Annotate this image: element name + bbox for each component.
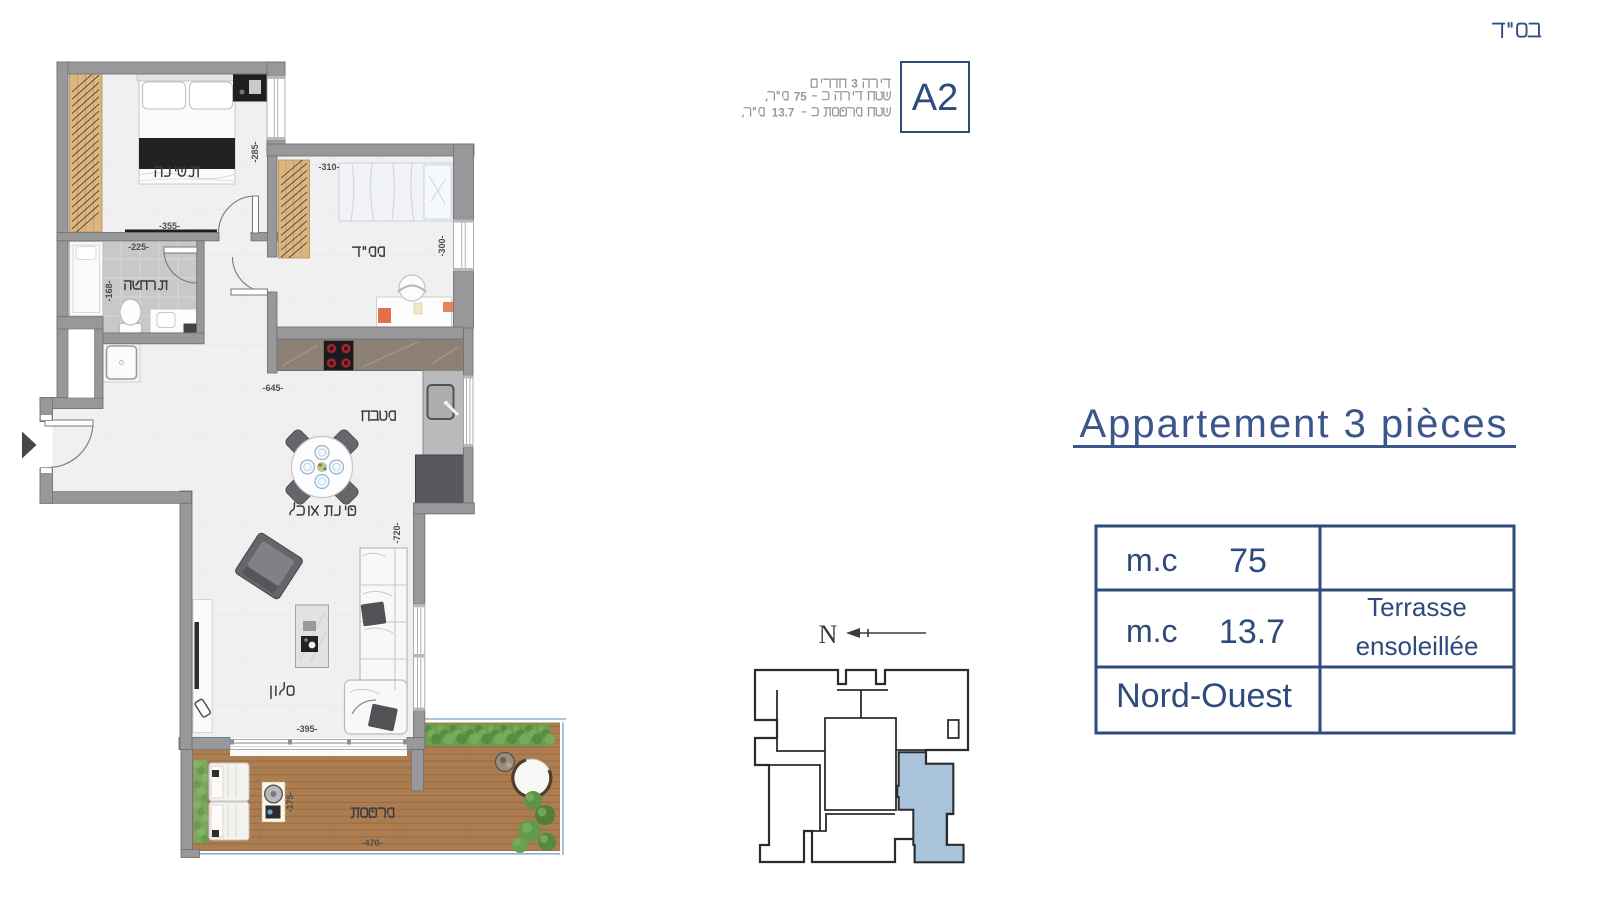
svg-text:3: 3 <box>851 78 858 91</box>
svg-text:A2: A2 <box>912 77 958 119</box>
svg-text:ensoleillée: ensoleillée <box>1356 631 1479 661</box>
svg-text:m.c: m.c <box>1126 613 1178 649</box>
svg-text:-168-: -168- <box>104 280 114 301</box>
svg-text:-395-: -395- <box>296 724 317 734</box>
svg-text:-175-: -175- <box>285 791 295 812</box>
svg-text:m.c: m.c <box>1126 542 1178 578</box>
svg-text:N: N <box>819 620 838 649</box>
svg-text:75: 75 <box>794 90 807 103</box>
svg-text:Terrasse: Terrasse <box>1367 592 1467 622</box>
svg-text:-300-: -300- <box>437 235 447 256</box>
svg-text:-310-: -310- <box>318 162 339 172</box>
svg-text:13.7: 13.7 <box>1219 613 1285 651</box>
svg-text:-285-: -285- <box>250 141 260 162</box>
svg-text:75: 75 <box>1229 542 1267 580</box>
svg-text:-720-: -720- <box>392 522 402 543</box>
svg-text:-225-: -225- <box>128 242 149 252</box>
svg-text:-355-: -355- <box>159 221 180 231</box>
svg-text:-470-: -470- <box>361 838 382 848</box>
svg-text:-645-: -645- <box>262 383 283 393</box>
svg-text:Nord-Ouest: Nord-Ouest <box>1116 677 1292 715</box>
svg-text:Appartement 3 pièces: Appartement 3 pièces <box>1079 402 1508 446</box>
svg-text:13.7: 13.7 <box>772 106 795 119</box>
